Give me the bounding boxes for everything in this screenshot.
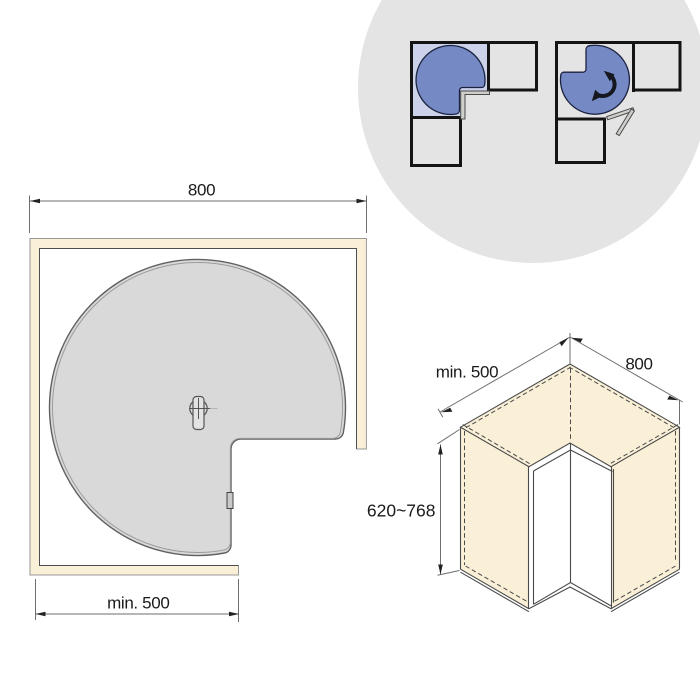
svg-text:620~768: 620~768: [367, 500, 436, 520]
svg-text:800: 800: [625, 355, 652, 374]
svg-text:min. 500: min. 500: [107, 593, 169, 612]
svg-text:min. 500: min. 500: [436, 363, 498, 382]
svg-text:800: 800: [188, 181, 215, 200]
